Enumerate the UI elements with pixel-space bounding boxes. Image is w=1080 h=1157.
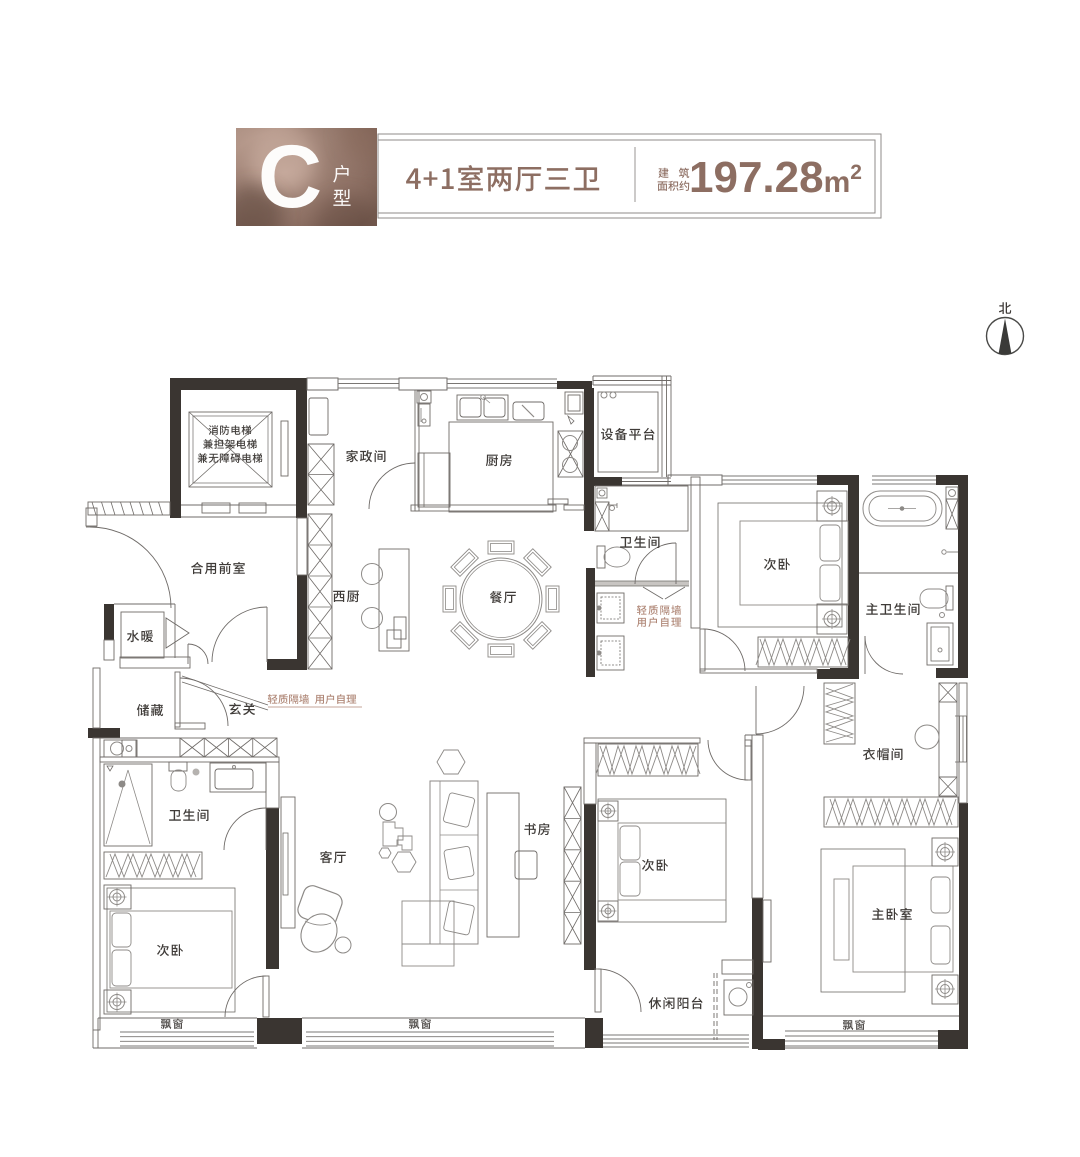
svg-text:C: C	[258, 126, 322, 226]
